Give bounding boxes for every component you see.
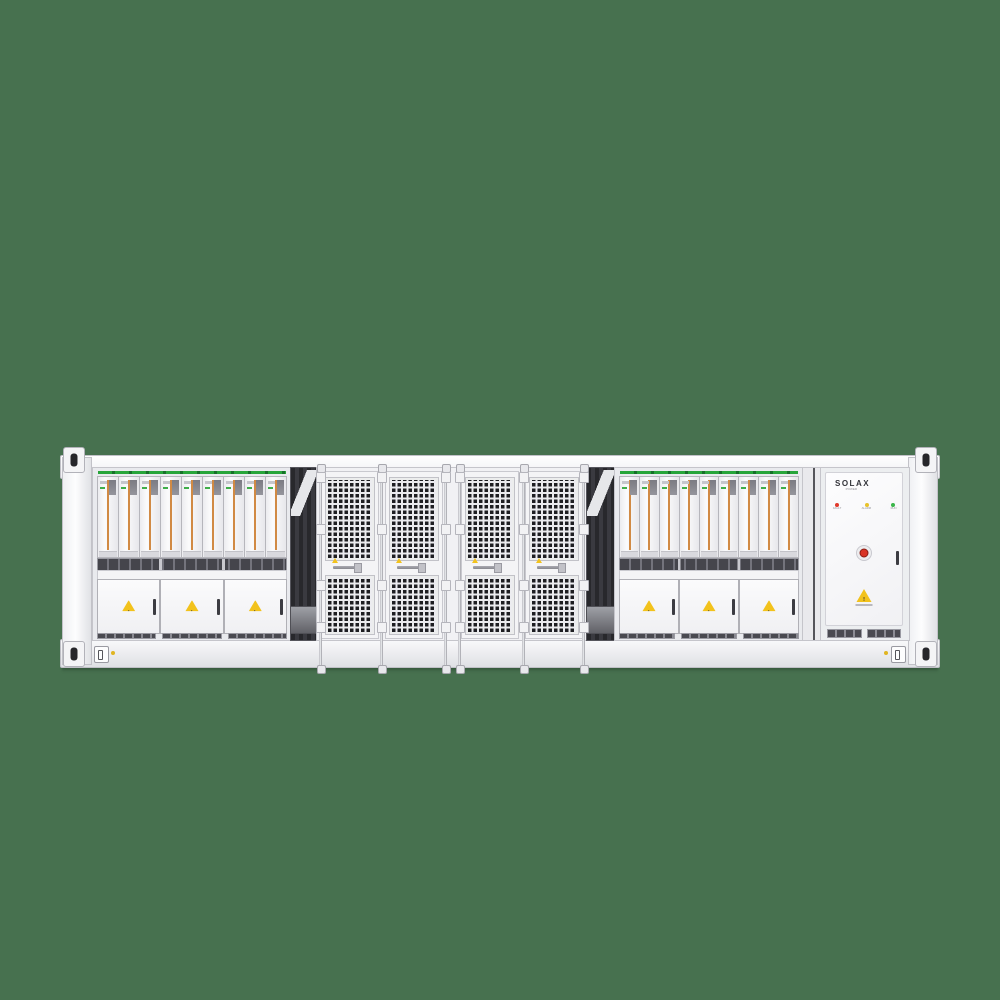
- cabinet-door: !: [161, 580, 222, 633]
- module-label-plate: [100, 481, 107, 484]
- module-vent: [650, 480, 656, 495]
- module-label-plate: [205, 481, 212, 484]
- warning-triangle-icon: !: [857, 589, 872, 602]
- warning-sticker-icon: [396, 558, 402, 563]
- diagonal-brace: [291, 470, 317, 516]
- door-handle-band: [389, 556, 439, 576]
- door-handle: [792, 599, 795, 615]
- ground-switch-right: [891, 646, 906, 663]
- door-lock-rod: [522, 464, 525, 674]
- door-lock-rod: [458, 464, 461, 674]
- module-vent: [109, 480, 116, 495]
- mesh-door: [525, 471, 583, 639]
- module-label-plate: [622, 481, 629, 484]
- door-lever-handle: [473, 566, 495, 569]
- equipment-bays: PCS Distribution Cabinet ! ! !: [90, 467, 910, 639]
- pcs-module-row: [97, 476, 287, 558]
- module-vent: [172, 480, 179, 495]
- pcs-module: [266, 477, 286, 557]
- module-label-plate: [121, 481, 128, 484]
- mesh-door: [321, 471, 379, 639]
- module-status-led: [142, 487, 147, 489]
- corner-casting-bottom-left: [63, 641, 85, 667]
- indicator-fault: FAULT: [828, 503, 846, 514]
- module-status-led: [121, 487, 126, 489]
- module-status-led: [184, 487, 189, 489]
- cabinet-bottom-vents: [97, 633, 287, 639]
- module-label-plate: [226, 481, 233, 484]
- cabinet-door: !: [225, 580, 286, 633]
- cabinet-bottom-vents: [619, 633, 799, 639]
- door-lock-rod: [582, 464, 585, 674]
- corner-casting-hole: [71, 648, 78, 661]
- busbar-block: [586, 606, 616, 634]
- module-base: [720, 551, 737, 557]
- handle-pivot: [354, 563, 362, 573]
- module-label-plate: [781, 481, 788, 484]
- module-status-led: [761, 487, 766, 489]
- corner-casting-hole: [923, 648, 930, 661]
- pcs-module: [245, 477, 265, 557]
- door-handle: [672, 599, 675, 615]
- corner-casting-hole: [923, 454, 930, 467]
- module-label-plate: [642, 481, 649, 484]
- door-handle: [280, 599, 283, 615]
- pcs-module: [759, 477, 778, 557]
- module-status-led: [100, 487, 105, 489]
- warning-triangle-icon: !: [249, 600, 262, 611]
- door-lock-rod: [444, 464, 447, 674]
- module-label-plate: [247, 481, 254, 484]
- frame-gap-right: [586, 467, 616, 641]
- door-handle-band: [529, 556, 579, 576]
- module-status-led: [781, 487, 786, 489]
- mesh-panel-lower: [466, 576, 514, 634]
- module-vent: [130, 480, 137, 495]
- module-label-plate: [702, 481, 709, 484]
- module-label-plate: [268, 481, 275, 484]
- busbar-block: [290, 606, 318, 634]
- module-base: [740, 551, 757, 557]
- control-cabinet-door: SOLAX POWER FAULT ALARM RUN: [825, 472, 903, 626]
- warning-sticker-icon: [472, 558, 478, 563]
- mesh-panel-lower: [390, 576, 438, 634]
- door-handle: [896, 551, 899, 565]
- cabinet-doors: ! ! !: [97, 579, 287, 634]
- module-status-led: [662, 487, 667, 489]
- module-vent: [151, 480, 158, 495]
- vent-grille: [97, 633, 156, 639]
- mesh-door: [385, 471, 443, 639]
- brand-logo-sub: POWER: [838, 488, 857, 491]
- module-vent: [790, 480, 796, 495]
- pcs-module: [119, 477, 139, 557]
- indicator-alarm: ALARM: [856, 503, 877, 514]
- container-right-post: [908, 457, 938, 665]
- pcs-module: [98, 477, 118, 557]
- door-handle-band: [325, 556, 375, 576]
- corner-casting-bottom-right: [915, 641, 937, 667]
- status-indicator-row: FAULT ALARM RUN: [826, 503, 902, 514]
- corner-casting-hole: [71, 454, 78, 467]
- rack-led-strip: [98, 471, 286, 474]
- ground-stud-right: [884, 651, 888, 655]
- module-base: [162, 551, 180, 557]
- mesh-panel-upper: [466, 478, 514, 560]
- container-bottom-rail: [60, 639, 940, 668]
- cabinet-doors: ! ! !: [619, 579, 799, 634]
- module-status-led: [642, 487, 647, 489]
- cabinet-door: !: [740, 580, 798, 633]
- door-lever-handle: [537, 566, 559, 569]
- module-base: [661, 551, 678, 557]
- mesh-panel-lower: [530, 576, 578, 634]
- warning-triangle-icon: !: [763, 600, 776, 611]
- pcs-module: [224, 477, 244, 557]
- frame-gap-left: [290, 467, 318, 641]
- brand-logo: SOLAX: [835, 479, 870, 488]
- ground-stud-left: [111, 651, 115, 655]
- pcs-module: [161, 477, 181, 557]
- module-label-plate: [721, 481, 728, 484]
- module-vent: [690, 480, 696, 495]
- bess-container: PCS Distribution Cabinet ! ! !: [60, 447, 940, 667]
- pcs-module: [680, 477, 699, 557]
- module-label-plate: [761, 481, 768, 484]
- indicator-run: RUN: [887, 503, 900, 514]
- ground-switch-left: [94, 646, 109, 663]
- corner-casting-top-right: [915, 447, 937, 473]
- pcs-cabinet-right: PCS Distribution Cabinet ! ! !: [614, 467, 804, 641]
- pcs-module: [739, 477, 758, 557]
- module-status-led: [741, 487, 746, 489]
- module-base: [183, 551, 201, 557]
- cabinet-door: !: [620, 580, 678, 633]
- vent-grille: [867, 629, 902, 638]
- battery-bay: [316, 467, 588, 641]
- mesh-panel-upper: [390, 478, 438, 560]
- module-vent: [710, 480, 716, 495]
- emergency-stop-button: [856, 545, 872, 561]
- warning-caption: [856, 604, 873, 606]
- pcs-module: [779, 477, 798, 557]
- pcs-cabinet-left: PCS Distribution Cabinet ! ! !: [92, 467, 292, 641]
- door-handle: [732, 599, 735, 615]
- module-base: [681, 551, 698, 557]
- door-lever-handle: [333, 566, 355, 569]
- frame-post-gap: [802, 467, 822, 641]
- module-base: [701, 551, 718, 557]
- module-label-plate: [142, 481, 149, 484]
- warning-triangle-icon: !: [643, 600, 656, 611]
- pcs-module: [660, 477, 679, 557]
- diagonal-brace: [587, 470, 615, 516]
- handle-pivot: [418, 563, 426, 573]
- module-label-plate: [662, 481, 669, 484]
- module-vent: [277, 480, 284, 495]
- module-vent: [235, 480, 242, 495]
- module-label-plate: [163, 481, 170, 484]
- mesh-panel-upper: [530, 478, 578, 560]
- handle-pivot: [494, 563, 502, 573]
- mesh-panel-lower: [326, 576, 374, 634]
- module-status-led: [205, 487, 210, 489]
- scene-background: PCS Distribution Cabinet ! ! !: [0, 0, 1000, 1000]
- cabinet-door: !: [680, 580, 738, 633]
- handle-pivot: [558, 563, 566, 573]
- module-vent: [214, 480, 221, 495]
- vent-grille: [681, 633, 737, 639]
- vent-grille: [743, 633, 799, 639]
- warning-sticker-icon: [332, 558, 338, 563]
- mesh-door: [461, 471, 519, 639]
- module-base: [99, 551, 117, 557]
- module-base: [246, 551, 264, 557]
- module-base: [780, 551, 797, 557]
- pcs-module: [182, 477, 202, 557]
- warning-triangle-icon: !: [703, 600, 716, 611]
- pcs-module: [719, 477, 738, 557]
- control-cabinet: SOLAX POWER FAULT ALARM RUN: [820, 467, 910, 641]
- module-base: [120, 551, 138, 557]
- module-base: [760, 551, 777, 557]
- module-base: [641, 551, 658, 557]
- pcs-module: [620, 477, 639, 557]
- module-base: [267, 551, 285, 557]
- module-vent: [630, 480, 636, 495]
- door-lock-rod: [319, 464, 322, 674]
- module-vent: [670, 480, 676, 495]
- module-status-led: [268, 487, 273, 489]
- module-base: [225, 551, 243, 557]
- vent-grille: [228, 633, 287, 639]
- door-lever-handle: [397, 566, 419, 569]
- module-status-led: [702, 487, 707, 489]
- module-status-led: [247, 487, 252, 489]
- module-base: [621, 551, 638, 557]
- module-status-led: [622, 487, 627, 489]
- door-handle-band: [465, 556, 515, 576]
- module-base: [204, 551, 222, 557]
- warning-triangle-icon: !: [122, 600, 135, 611]
- module-status-led: [226, 487, 231, 489]
- container-left-post: [62, 457, 92, 665]
- module-base: [141, 551, 159, 557]
- module-vent: [193, 480, 200, 495]
- module-vent: [730, 480, 736, 495]
- cabinet-door: !: [98, 580, 159, 633]
- module-vent: [256, 480, 263, 495]
- vent-grille: [619, 633, 675, 639]
- pcs-module: [203, 477, 223, 557]
- module-label-plate: [682, 481, 689, 484]
- mesh-doors: [317, 468, 587, 640]
- door-handle: [153, 599, 156, 615]
- module-status-led: [682, 487, 687, 489]
- corner-casting-top-left: [63, 447, 85, 473]
- vent-grille: [827, 629, 862, 638]
- pcs-module: [700, 477, 719, 557]
- module-status-led: [721, 487, 726, 489]
- pcs-module-row: [619, 476, 799, 558]
- warning-sticker-icon: [536, 558, 542, 563]
- warning-triangle-icon: !: [185, 600, 198, 611]
- rack-led-strip: [620, 471, 798, 474]
- module-label-plate: [184, 481, 191, 484]
- module-label-plate: [741, 481, 748, 484]
- pcs-module: [640, 477, 659, 557]
- control-bottom-vents: [827, 629, 901, 638]
- module-status-led: [163, 487, 168, 489]
- pcs-module: [140, 477, 160, 557]
- door-lock-rod: [380, 464, 383, 674]
- mesh-panel-upper: [326, 478, 374, 560]
- module-vent: [750, 480, 756, 495]
- module-vent: [770, 480, 776, 495]
- door-handle: [217, 599, 220, 615]
- vent-grille: [162, 633, 221, 639]
